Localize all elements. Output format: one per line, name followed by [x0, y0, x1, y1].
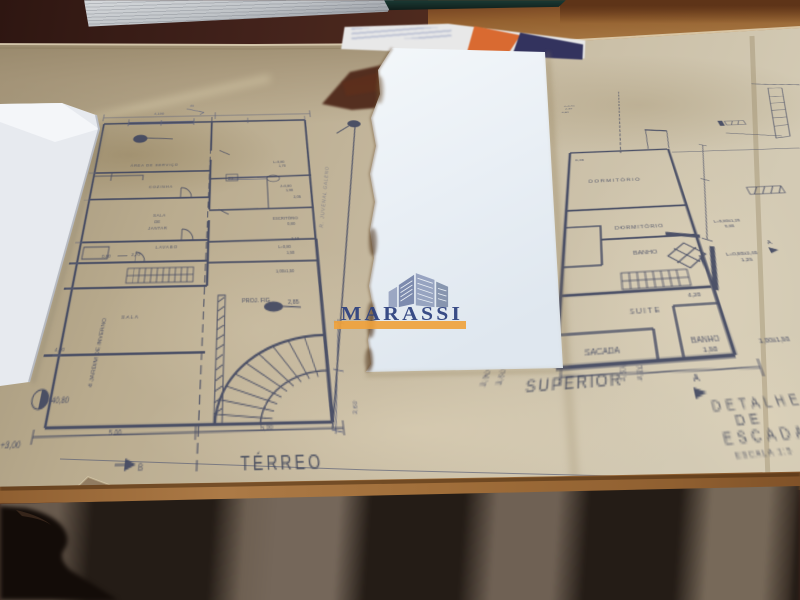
svg-text:1,70: 1,70: [278, 164, 286, 169]
svg-text:5,00: 5,00: [260, 422, 273, 433]
svg-text:1,00x1,50: 1,00x1,50: [276, 268, 295, 274]
svg-text:1,50: 1,50: [702, 345, 719, 355]
svg-text:3,60: 3,60: [352, 400, 359, 415]
svg-text:PROJ. FIG: PROJ. FIG: [242, 296, 270, 304]
svg-text:2,05: 2,05: [293, 194, 301, 199]
svg-text:TÉRREO: TÉRREO: [240, 451, 324, 475]
svg-text:A: A: [692, 373, 702, 385]
svg-text:1,90: 1,90: [286, 188, 294, 193]
svg-text:2,85: 2,85: [288, 298, 301, 306]
svg-text:ESCRITÓRIO: ESCRITÓRIO: [273, 214, 299, 221]
svg-text:4,20: 4,20: [687, 292, 702, 300]
svg-text:BANHO: BANHO: [691, 336, 722, 347]
svg-text:2,10: 2,10: [291, 236, 300, 241]
svg-text:DORMITÓRIO: DORMITÓRIO: [615, 223, 665, 231]
svg-text:R. JUVENAL GALENO: R. JUVENAL GALENO: [318, 166, 330, 229]
svg-text:A: A: [766, 240, 774, 246]
svg-text:1,00x1,50: 1,00x1,50: [758, 335, 792, 346]
svg-text:SUITE: SUITE: [628, 306, 662, 317]
svg-text:1,50: 1,50: [286, 250, 295, 256]
svg-text:0,80: 0,80: [724, 224, 735, 228]
svg-text:P3: P3: [228, 176, 233, 181]
svg-text:L=0,80x1,20: L=0,80x1,20: [713, 218, 741, 223]
svg-text:0,80: 0,80: [287, 221, 296, 226]
svg-text:L=0,80: L=0,80: [278, 244, 291, 250]
svg-text:2,10: 2,10: [636, 364, 646, 381]
svg-text:BANHO: BANHO: [633, 250, 658, 257]
svg-text:1,25: 1,25: [740, 257, 754, 263]
